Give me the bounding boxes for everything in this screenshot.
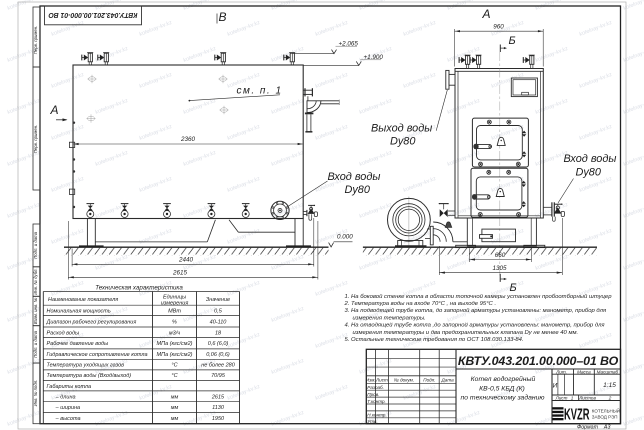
svg-text:Изм.: Изм.	[366, 378, 376, 383]
svg-text:мм: мм	[171, 394, 179, 400]
svg-text:Т.контр.: Т.контр.	[367, 399, 386, 404]
svg-text:измерения температуры.: измерения температуры.	[353, 315, 426, 321]
svg-text:Инв. № подл.: Инв. № подл.	[33, 380, 38, 407]
svg-text:%: %	[172, 319, 177, 325]
svg-text:Лит.: Лит.	[555, 370, 567, 375]
svg-text:18: 18	[215, 330, 222, 336]
svg-text:Техническая характеристика: Техническая характеристика	[95, 285, 183, 292]
svg-text:KVZR: KVZR	[564, 407, 590, 424]
svg-text:А: А	[50, 103, 59, 117]
svg-text:Номинальная мощность: Номинальная мощность	[47, 309, 111, 315]
svg-text:КВ-0,5 КБД (К): КВ-0,5 КБД (К)	[479, 385, 525, 392]
svg-text:2360: 2360	[180, 136, 196, 143]
svg-text:Н.контр.: Н.контр.	[367, 413, 386, 418]
svg-text:КВТУ.043.201.00.000-01 ВО: КВТУ.043.201.00.000-01 ВО	[48, 11, 138, 18]
svg-text:Масса: Масса	[577, 370, 591, 375]
svg-text:1950: 1950	[212, 416, 225, 422]
svg-text:КОТЕЛЬНЫЙ: КОТЕЛЬНЫЙ	[592, 407, 620, 414]
svg-text:не более 280: не более 280	[201, 363, 236, 369]
svg-text:В: В	[219, 10, 227, 24]
svg-text:4. На отводящей трубе котла ,: 4. На отводящей трубе котла ,до запорной…	[345, 322, 606, 329]
svg-text:Лист: Лист	[375, 378, 388, 383]
svg-text:Формат А3: Формат А3	[577, 424, 610, 430]
svg-text:измерения: измерения	[161, 300, 189, 306]
svg-text:Температура воды (Вход/выход): Температура воды (Вход/выход)	[47, 373, 132, 379]
svg-text:Подп.: Подп.	[423, 378, 435, 383]
svg-text:Котел водогрейный: Котел водогрейный	[471, 375, 536, 383]
svg-text:Листов: Листов	[578, 396, 596, 401]
svg-text:Dy80: Dy80	[390, 136, 415, 148]
svg-text:Подп. и дата: Подп. и дата	[33, 231, 38, 259]
svg-text:°С: °С	[171, 363, 177, 369]
svg-text:А: А	[482, 7, 491, 21]
svg-text:0.000: 0.000	[337, 233, 353, 240]
svg-text:МВт: МВт	[168, 309, 181, 315]
svg-text:660: 660	[495, 252, 506, 259]
svg-text:И: И	[553, 383, 558, 390]
svg-text:КВТУ.043.201.00.000–01 ВО: КВТУ.043.201.00.000–01 ВО	[458, 354, 619, 368]
svg-text:2440: 2440	[178, 257, 194, 264]
svg-text:измерения температуры и два пр: измерения температуры и два предохраните…	[353, 330, 579, 336]
svg-text:Гидравлическое сопротивление к: Гидравлическое сопротивление котла	[47, 352, 148, 358]
svg-text:– длина: – длина	[47, 394, 76, 400]
svg-text:°С: °С	[171, 373, 177, 379]
svg-text:Диапазон рабочего регулировани: Диапазон рабочего регулирования	[46, 319, 137, 325]
svg-text:МПа (кгс/см2): МПа (кгс/см2)	[157, 341, 193, 347]
svg-text:960: 960	[493, 24, 504, 31]
svg-text:МПа (кгс/см2): МПа (кгс/см2)	[157, 352, 193, 358]
svg-text:по техническому заданию: по техническому заданию	[461, 394, 545, 402]
svg-text:1:15: 1:15	[603, 382, 616, 389]
svg-text:см. п. 1: см. п. 1	[237, 86, 283, 97]
svg-text:2: 2	[608, 396, 612, 401]
svg-text:2615: 2615	[211, 394, 225, 400]
svg-text:Дата: Дата	[441, 378, 455, 383]
svg-text:Наименование показателя: Наименование показателя	[48, 297, 118, 303]
svg-text:мм: мм	[171, 416, 179, 422]
svg-text:Инв. № дубл.: Инв. № дубл.	[33, 268, 38, 294]
svg-text:Пров.: Пров.	[367, 392, 379, 397]
svg-text:2615: 2615	[172, 270, 188, 277]
svg-text:Б: Б	[509, 35, 516, 47]
svg-text:1: 1	[571, 396, 574, 401]
svg-text:Перв. примен.: Перв. примен.	[33, 125, 38, 154]
svg-text:1130: 1130	[212, 405, 225, 411]
svg-text:Габариты котла: Габариты котла	[47, 384, 92, 390]
svg-text:– ширина: – ширина	[47, 405, 81, 411]
svg-text:Взам. инв. №: Взам. инв. №	[33, 297, 38, 324]
svg-text:5. Остальные технические треб: 5. Остальные технические требования по О…	[345, 337, 524, 343]
svg-text:Рабочее давление воды: Рабочее давление воды	[47, 341, 109, 347]
svg-text:0,6 (6,0): 0,6 (6,0)	[208, 341, 229, 347]
svg-text:Лист: Лист	[555, 396, 568, 401]
svg-text:м3/ч: м3/ч	[169, 330, 180, 336]
svg-text:Расход воды: Расход воды	[47, 330, 80, 336]
svg-text:№ докум.: № докум.	[394, 378, 414, 383]
svg-text:Вход воды: Вход воды	[564, 153, 617, 165]
svg-text:1. На боковой стенке котла в: 1. На боковой стенке котла в области топ…	[345, 293, 613, 300]
svg-text:Утв.: Утв.	[367, 419, 377, 424]
svg-text:Разраб.: Разраб.	[367, 385, 384, 390]
svg-text:0,06 (0,6): 0,06 (0,6)	[206, 352, 230, 358]
svg-text:– высота: – высота	[47, 416, 81, 422]
svg-text:Значение: Значение	[206, 297, 230, 303]
svg-text:Б: Б	[510, 282, 517, 294]
svg-text:70/95: 70/95	[211, 373, 226, 379]
svg-text:Dy80: Dy80	[345, 184, 370, 196]
svg-text:+2.065: +2.065	[339, 40, 359, 47]
svg-text:+1.900: +1.900	[364, 54, 384, 61]
svg-text:Вход воды: Вход воды	[328, 171, 381, 183]
svg-text:мм: мм	[171, 405, 179, 411]
svg-text:3. На подводящей трубе котла,: 3. На подводящей трубе котла, до запорно…	[345, 307, 607, 314]
svg-text:Dy80: Dy80	[576, 167, 601, 179]
svg-text:Подп. и дата: Подп. и дата	[33, 330, 38, 358]
svg-text:Перв. примен.: Перв. примен.	[33, 26, 38, 55]
svg-text:0,5: 0,5	[214, 309, 223, 315]
svg-text:40-110: 40-110	[210, 319, 228, 325]
svg-text:Выход воды: Выход воды	[371, 123, 432, 135]
svg-text:1305: 1305	[492, 265, 507, 272]
svg-text:Температура уходящих газов: Температура уходящих газов	[47, 363, 125, 369]
svg-text:ЗАВОД РЭП: ЗАВОД РЭП	[592, 415, 618, 420]
svg-text:2. Температура воды на входе: 2. Температура воды на входе 70°С , на в…	[344, 301, 497, 307]
svg-text:Масштаб: Масштаб	[597, 370, 619, 375]
